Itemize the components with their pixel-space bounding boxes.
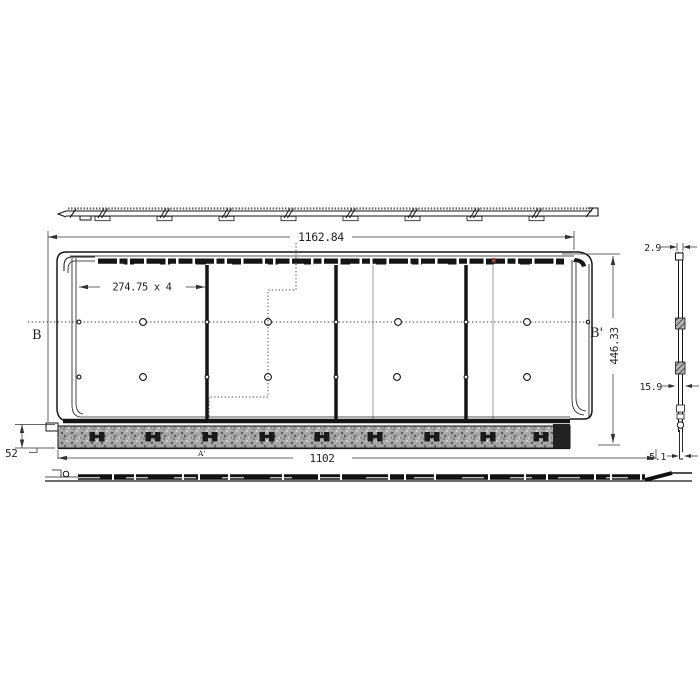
hatched-strip-end-cap	[553, 424, 570, 449]
band-end-cap	[573, 258, 586, 267]
red-reference-tick	[492, 258, 496, 263]
dim-side-mid-text: 15.9	[640, 382, 663, 393]
dim-side-top-text: 2.9	[644, 243, 661, 254]
hidden-edges	[373, 265, 493, 419]
dim-side-bottom-text: 5.1	[649, 452, 666, 463]
top-profile-view	[58, 208, 598, 221]
arrowhead-right	[565, 235, 574, 239]
dim-pitch: 274.75 x 4	[79, 282, 205, 294]
panel-technical-drawing: 1162.84	[0, 0, 700, 700]
arrowhead-left	[48, 235, 57, 239]
section-label-b: B	[32, 328, 42, 343]
dim-pitch-text: 274.75 x 4	[112, 282, 171, 294]
dim-overall-width-text: 1162.84	[298, 230, 344, 244]
hidden-feature-path	[209, 243, 296, 423]
section-label-b-prime: B'	[590, 326, 603, 341]
drawing-canvas: 1162.84	[0, 0, 700, 700]
bottom-profile-view	[45, 470, 692, 481]
dim-bottom-width-text: 1102	[310, 452, 335, 465]
dim-bottom-width: 1102	[58, 449, 656, 465]
dim-overall-height-text: 446.33	[608, 327, 621, 364]
holes-row-2	[77, 374, 530, 381]
panel-dividers	[207, 265, 466, 419]
section-label-a-prime: A'	[197, 449, 205, 458]
side-profile-view: 2.9 15.9 5.1	[640, 243, 699, 463]
dim-edge-height-text: 52	[5, 447, 17, 460]
front-view	[28, 243, 592, 449]
